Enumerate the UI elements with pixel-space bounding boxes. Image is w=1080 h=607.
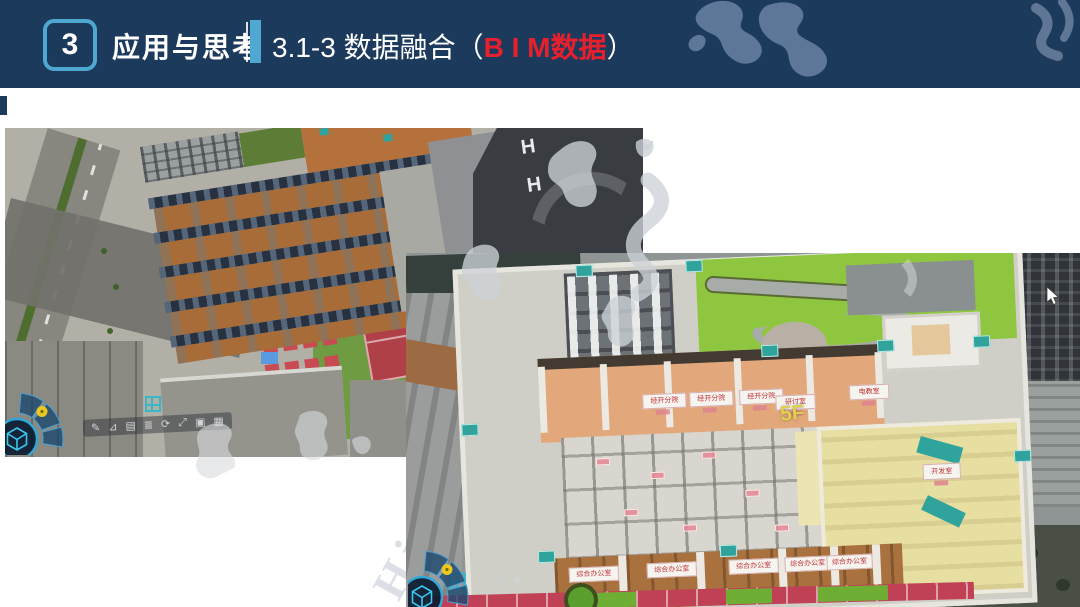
rooftop-block — [350, 380, 412, 457]
subtitle-suffix: ） — [607, 32, 635, 63]
rooftop-green — [239, 128, 306, 167]
room-sign: 综合办公室 — [784, 555, 831, 572]
left-edge-notch — [0, 96, 7, 115]
room-sign: 经开分院 — [689, 390, 734, 407]
nav-cube-widget[interactable] — [408, 543, 478, 607]
room-sign: 综合办公室 — [569, 566, 620, 583]
subtitle-prefix: 3.1-3 数据融合（ — [272, 32, 484, 63]
teal-desk — [921, 495, 966, 528]
court-line — [367, 334, 409, 343]
frame-tool-icon[interactable]: ▣ — [195, 415, 206, 429]
helipad-mark: H — [525, 173, 543, 198]
garden-roof — [846, 260, 976, 316]
refresh-tool-icon[interactable]: ⟳ — [161, 417, 171, 430]
slide-subtitle: 3.1-3 数据融合（B I M数据） — [272, 26, 635, 66]
pool — [261, 352, 278, 364]
floor-label: 5F — [779, 401, 805, 427]
room-sign: 综合办公室 — [826, 554, 873, 571]
measure-tool-icon[interactable]: ⊿ — [108, 420, 118, 433]
slide: 3 应用与思考 3.1-3 数据融合（B I M数据） — [0, 0, 1080, 607]
room-sign: 经开分院 — [642, 393, 687, 410]
expand-tool-icon[interactable]: ⤢ — [178, 416, 187, 429]
helipad-mark: H — [519, 135, 537, 160]
nav-cube-widget[interactable] — [5, 385, 73, 455]
trees — [101, 248, 107, 254]
slide-header: 3 应用与思考 3.1-3 数据融合（B I M数据） — [0, 0, 1080, 88]
layer-grid-icon[interactable] — [145, 396, 161, 412]
room-sign: 电教室 — [849, 384, 890, 401]
corridor-maze — [561, 427, 822, 560]
room-sign: 开发室 — [922, 463, 961, 481]
mouse-cursor-icon — [1046, 286, 1060, 306]
grid-tool-icon[interactable]: ▦ — [213, 415, 224, 429]
header-accent-bar — [250, 20, 261, 63]
layers-tool-icon[interactable]: ▤ — [125, 419, 136, 433]
pen-tool-icon[interactable]: ✎ — [494, 573, 504, 586]
rooftop-block — [160, 366, 348, 457]
floor-plate-5f: 经开分院 经开分院 经开分院 研讨室 电教室 5F — [452, 253, 1037, 607]
floorplan-screenshot: 经开分院 经开分院 经开分院 研讨室 电教室 5F — [406, 253, 1080, 607]
room-sign: 综合办公室 — [646, 561, 697, 578]
section-number: 3 — [62, 28, 79, 62]
section-number-box: 3 — [43, 19, 97, 71]
viewer-toolbar[interactable]: ✎ ▲ — [486, 570, 531, 589]
garden-pavilion — [882, 312, 982, 372]
list-tool-icon[interactable]: ≣ — [144, 418, 154, 431]
rooftop-units — [140, 132, 244, 183]
room-sign: 综合办公室 — [728, 558, 779, 575]
pen-tool-icon[interactable]: ✎ — [91, 421, 101, 434]
subtitle-highlight: B I M数据 — [484, 32, 607, 63]
header-divider — [246, 22, 248, 62]
section-title: 应用与思考 — [112, 26, 262, 66]
teal-desk — [916, 436, 963, 464]
mountain-tool-icon[interactable]: ▲ — [511, 573, 523, 586]
